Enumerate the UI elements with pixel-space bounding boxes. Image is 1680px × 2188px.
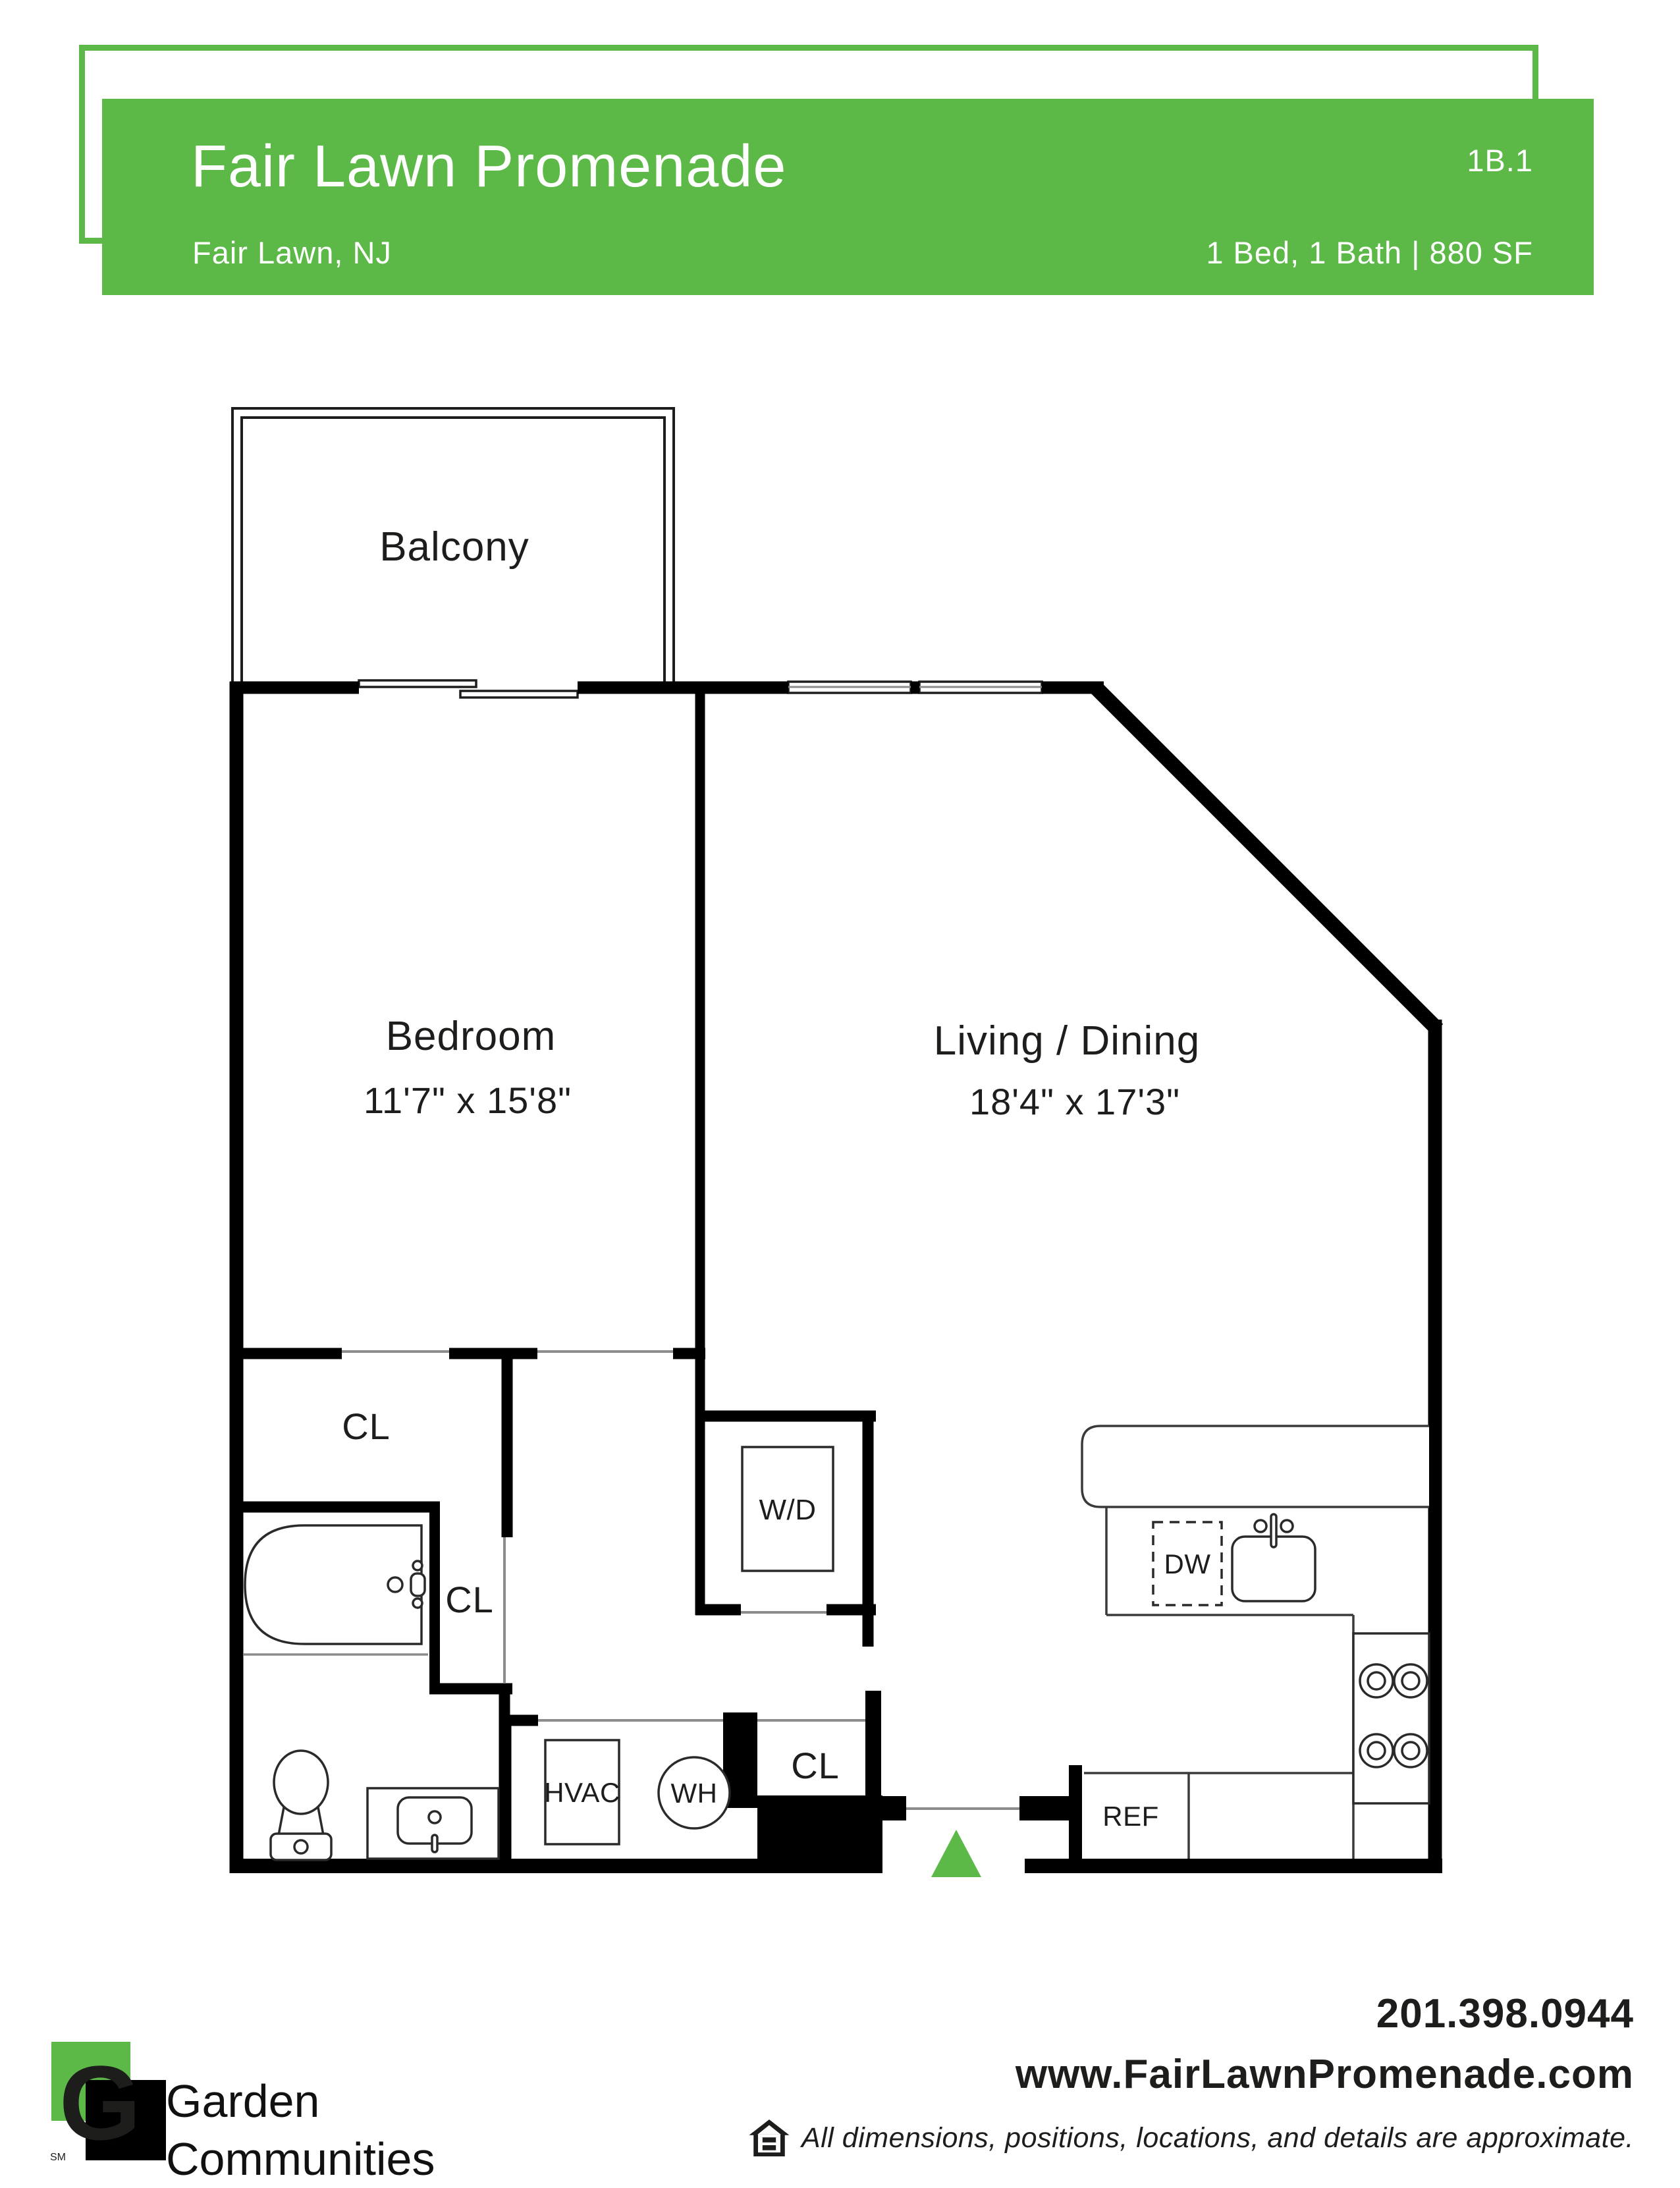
living-dining-label: Living / Dining <box>934 1018 1200 1064</box>
logo-initial: G <box>59 2044 141 2162</box>
floor-plan: Balcony Bedroom 11'7" x 15'8" Living / D… <box>0 0 1680 2174</box>
water-heater-label: WH <box>671 1778 718 1809</box>
disclaimer: All dimensions, positions, locations, an… <box>749 2120 1634 2156</box>
bedroom-closet-label: CL <box>342 1406 391 1447</box>
door-openings <box>342 1352 1019 1809</box>
stove <box>1353 1633 1429 1803</box>
entry-closet-label: CL <box>791 1745 840 1786</box>
breakfast-bar-counter <box>1082 1426 1429 1507</box>
balcony-label: Balcony <box>379 524 529 570</box>
phone-number: 201.398.0944 <box>1376 1990 1634 2037</box>
bedroom-label: Bedroom <box>386 1014 556 1059</box>
exterior-walls <box>230 682 1442 1873</box>
brand-line2: Communities <box>166 2130 435 2188</box>
dishwasher-label: DW <box>1164 1548 1211 1579</box>
disclaimer-text: All dimensions, positions, locations, an… <box>801 2122 1634 2154</box>
toilet <box>271 1751 331 1860</box>
bathtub <box>245 1525 425 1644</box>
refrigerator-label: REF <box>1102 1801 1159 1832</box>
entry-arrow <box>931 1830 981 1877</box>
equal-housing-icon <box>749 2120 790 2156</box>
interior-walls <box>230 682 1075 1873</box>
bedroom-dimensions: 11'7" x 15'8" <box>364 1080 572 1121</box>
bathroom-vanity-sink <box>367 1788 499 1859</box>
brand-name: Garden Communities <box>166 2072 435 2188</box>
balcony-slider-panel-1 <box>359 680 476 687</box>
brand-line1: Garden <box>166 2072 435 2130</box>
flyer-page: Fair Lawn Promenade Fair Lawn, NJ 1B.1 1… <box>0 0 1680 2174</box>
linen-closet-label: CL <box>445 1579 494 1620</box>
logo-service-mark: SM <box>50 2152 66 2163</box>
balcony-slider-panel-2 <box>460 691 578 697</box>
washer-dryer-label: W/D <box>759 1494 816 1526</box>
hvac-label: HVAC <box>544 1777 620 1808</box>
plan-labels: Balcony Bedroom 11'7" x 15'8" Living / D… <box>342 524 1210 1832</box>
website-url: www.FairLawnPromenade.com <box>1016 2051 1634 2098</box>
living-dining-dimensions: 18'4" x 17'3" <box>969 1081 1180 1122</box>
kitchen-sink <box>1232 1514 1315 1601</box>
